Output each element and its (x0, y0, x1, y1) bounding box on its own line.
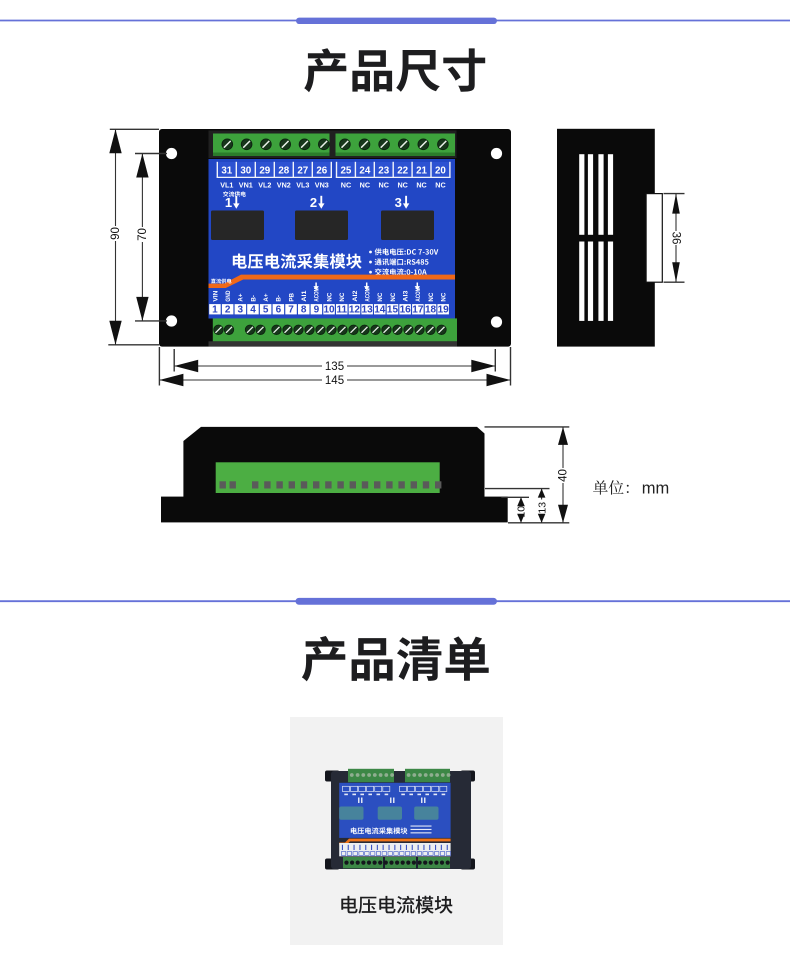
svg-text:5: 5 (263, 305, 269, 316)
svg-text:27: 27 (297, 166, 308, 177)
svg-text:ACOM-: ACOM- (415, 286, 422, 302)
svg-text:12: 12 (349, 305, 361, 316)
svg-text:16: 16 (400, 305, 412, 316)
svg-text:31: 31 (221, 166, 232, 177)
svg-text:1: 1 (212, 305, 218, 316)
svg-text:VL1: VL1 (220, 181, 233, 190)
svg-text:14: 14 (374, 305, 386, 316)
svg-text:AI3: AI3 (403, 290, 410, 302)
svg-text:26: 26 (316, 166, 327, 177)
svg-text:PB: PB (288, 292, 295, 301)
svg-text:NC: NC (416, 181, 426, 190)
svg-text:A+: A+ (263, 293, 270, 301)
svg-text:3: 3 (395, 195, 402, 210)
svg-text:145: 145 (325, 375, 344, 387)
svg-text:NC: NC (341, 181, 351, 190)
svg-text:B-: B- (250, 295, 257, 302)
svg-text:10: 10 (324, 305, 336, 316)
svg-text:90: 90 (110, 227, 122, 240)
svg-text:22: 22 (397, 166, 408, 177)
svg-text:VL2: VL2 (258, 181, 271, 190)
svg-text:7: 7 (288, 305, 294, 316)
svg-text:11: 11 (336, 305, 347, 316)
svg-text:40: 40 (558, 469, 570, 482)
svg-text:NC: NC (379, 181, 389, 190)
svg-text:30: 30 (240, 166, 251, 177)
svg-text:GND: GND (225, 290, 232, 301)
svg-text:B-: B- (276, 295, 283, 302)
svg-text:AI1: AI1 (301, 290, 308, 302)
svg-text:NC: NC (397, 181, 407, 190)
svg-text:9: 9 (314, 305, 320, 316)
svg-text:25: 25 (340, 166, 351, 177)
svg-text:NC: NC (390, 292, 397, 301)
svg-text:17: 17 (412, 305, 424, 316)
svg-text:20: 20 (435, 166, 446, 177)
svg-text:VN3: VN3 (315, 181, 329, 190)
svg-text:2: 2 (225, 305, 231, 316)
svg-text:NC: NC (428, 292, 435, 301)
svg-text:23: 23 (378, 166, 389, 177)
svg-text:A+: A+ (238, 293, 245, 301)
svg-text:3: 3 (238, 305, 244, 316)
svg-text:NC: NC (435, 181, 445, 190)
svg-text:NC: NC (339, 292, 346, 301)
svg-text:VIN: VIN (212, 290, 219, 302)
svg-text:AI2: AI2 (352, 290, 359, 302)
svg-text:VN1: VN1 (239, 181, 253, 190)
svg-text:NC: NC (326, 292, 333, 301)
svg-text:4: 4 (250, 305, 256, 316)
svg-text:NC: NC (360, 181, 370, 190)
svg-text:21: 21 (416, 166, 427, 177)
svg-text:13: 13 (362, 305, 374, 316)
svg-text:70: 70 (137, 228, 149, 241)
svg-text:2: 2 (310, 195, 317, 210)
svg-text:ACOM-: ACOM- (365, 286, 372, 302)
svg-text:VL3: VL3 (296, 181, 309, 190)
svg-text:NC: NC (441, 292, 448, 301)
svg-text:29: 29 (259, 166, 270, 177)
svg-text:10: 10 (516, 506, 528, 518)
svg-text:ACOM-: ACOM- (314, 286, 321, 302)
svg-text:1: 1 (225, 195, 232, 210)
svg-text:15: 15 (387, 305, 399, 316)
svg-text:mm: mm (642, 480, 670, 498)
svg-text:NC: NC (377, 292, 384, 301)
svg-text:13: 13 (536, 502, 548, 514)
svg-text:6: 6 (276, 305, 282, 316)
svg-text:8: 8 (301, 305, 307, 316)
svg-text:36: 36 (669, 232, 681, 245)
svg-text:135: 135 (325, 361, 344, 373)
svg-text:24: 24 (359, 166, 370, 177)
svg-text:28: 28 (278, 166, 289, 177)
svg-text:VN2: VN2 (277, 181, 291, 190)
svg-text:19: 19 (438, 305, 450, 316)
svg-text:18: 18 (425, 305, 437, 316)
